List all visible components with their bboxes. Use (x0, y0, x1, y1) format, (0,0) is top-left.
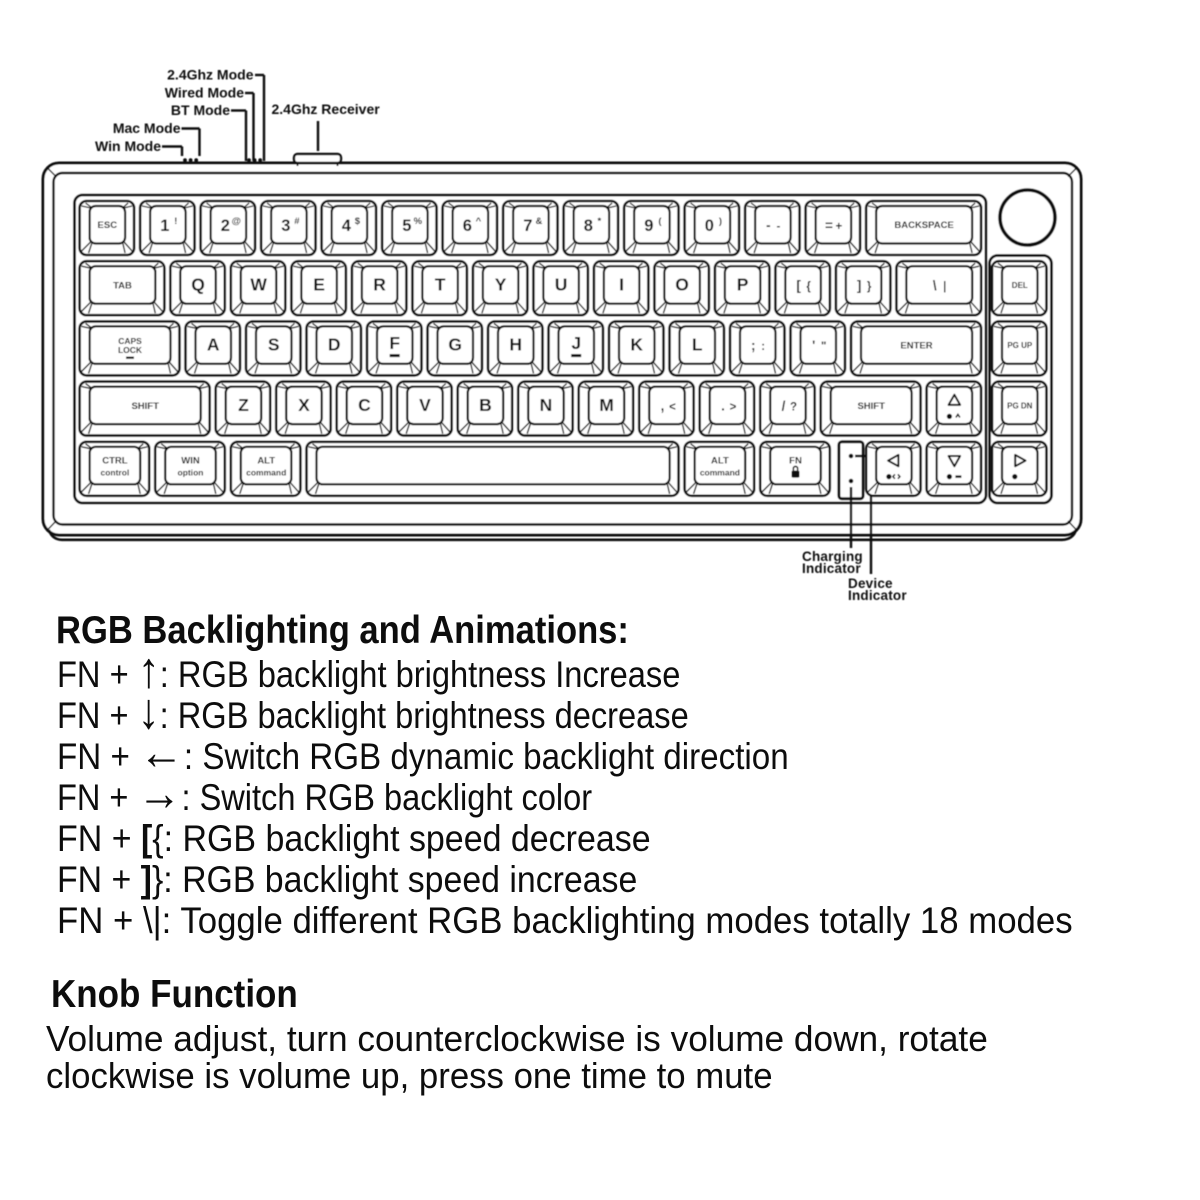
svg-text:PG UP: PG UP (1007, 341, 1033, 350)
svg-text:': ' (812, 338, 815, 353)
svg-text:Wired Mode: Wired Mode (165, 85, 244, 101)
svg-text:": " (821, 341, 826, 353)
svg-text:K: K (630, 335, 643, 355)
svg-text:>: > (730, 401, 737, 413)
svg-text:option: option (178, 468, 204, 478)
svg-text:Y: Y (495, 274, 507, 294)
svg-text:[: [ (796, 278, 801, 293)
svg-text:P: P (737, 274, 749, 294)
svg-text:\: \ (933, 278, 937, 293)
svg-text:E: E (313, 274, 325, 294)
svg-text:SHIFT: SHIFT (131, 401, 159, 412)
svg-text:2: 2 (221, 217, 230, 235)
svg-text:command: command (700, 468, 740, 478)
svg-text:/: / (782, 398, 786, 413)
svg-text:*: * (598, 216, 602, 227)
svg-text:command: command (246, 468, 286, 478)
svg-text:;: ; (751, 338, 756, 353)
svg-text:-: - (776, 221, 780, 233)
svg-text:9: 9 (644, 217, 653, 235)
svg-text:$: $ (355, 216, 361, 227)
svg-text:-: - (766, 218, 771, 233)
svg-text:H: H (509, 335, 522, 355)
svg-text:U: U (555, 274, 568, 294)
svg-text:B: B (479, 395, 492, 415)
svg-text:FN: FN (789, 456, 802, 467)
svg-text:%: % (414, 216, 423, 227)
svg-text:): ) (719, 216, 722, 227)
svg-text:5: 5 (402, 217, 411, 235)
svg-text:^: ^ (476, 216, 482, 227)
svg-text:@: @ (232, 216, 241, 227)
svg-text:L: L (692, 335, 703, 355)
svg-text:4: 4 (342, 217, 352, 235)
svg-text:Mac Mode: Mac Mode (113, 120, 181, 136)
svg-text:W: W (250, 274, 267, 294)
svg-text:BT Mode: BT Mode (171, 102, 230, 118)
svg-text:]: ] (857, 278, 862, 293)
svg-text:ALT: ALT (257, 456, 275, 467)
svg-text:V: V (419, 395, 431, 415)
svg-text:O: O (675, 274, 689, 294)
svg-text:J: J (571, 333, 581, 353)
svg-text:2.4Ghz Mode: 2.4Ghz Mode (167, 67, 254, 83)
svg-text:7: 7 (523, 217, 532, 235)
svg-text:|: | (943, 281, 946, 293)
svg-text:C: C (358, 395, 371, 415)
svg-text:3: 3 (281, 217, 290, 235)
svg-text:M: M (599, 395, 614, 415)
svg-text:.: . (721, 398, 725, 413)
svg-text:8: 8 (584, 217, 593, 235)
svg-text:R: R (373, 274, 386, 294)
svg-text:ESC: ESC (98, 220, 118, 231)
svg-text:TAB: TAB (113, 280, 132, 291)
svg-text:}: } (867, 281, 872, 293)
svg-text:D: D (328, 335, 341, 355)
svg-text:#: # (294, 216, 300, 227)
svg-text:A: A (207, 335, 220, 355)
svg-text:PG DN: PG DN (1007, 401, 1033, 410)
svg-text:Indicator: Indicator (848, 588, 907, 603)
svg-text:Win Mode: Win Mode (95, 138, 161, 154)
svg-text:+: + (836, 221, 843, 233)
svg-text:Q: Q (191, 274, 205, 294)
svg-text:T: T (435, 274, 446, 294)
svg-text:G: G (448, 335, 462, 355)
svg-text:0: 0 (705, 217, 714, 235)
svg-text:!: ! (174, 216, 177, 227)
svg-text:SHIFT: SHIFT (857, 401, 885, 412)
svg-text:S: S (268, 335, 280, 355)
svg-text:WIN: WIN (181, 456, 200, 467)
svg-text:=: = (825, 218, 833, 233)
svg-text:X: X (298, 395, 310, 415)
svg-text:1: 1 (160, 217, 169, 235)
svg-text:DEL: DEL (1012, 281, 1028, 290)
svg-text:Indicator: Indicator (802, 561, 861, 576)
svg-text:Z: Z (238, 395, 249, 415)
svg-text:CTRL: CTRL (102, 456, 128, 467)
svg-text:N: N (540, 395, 553, 415)
svg-text:LOCK: LOCK (118, 345, 143, 355)
svg-text:,: , (661, 398, 665, 413)
svg-text:F: F (389, 333, 400, 353)
svg-text:ENTER: ENTER (900, 341, 932, 352)
svg-text:<: < (669, 401, 676, 413)
svg-text:6: 6 (463, 217, 472, 235)
svg-text::: : (761, 341, 765, 353)
svg-text:?: ? (790, 401, 797, 413)
svg-text:{: { (806, 281, 811, 293)
svg-text:2.4Ghz Receiver: 2.4Ghz Receiver (272, 101, 381, 117)
svg-text:I: I (619, 274, 624, 294)
svg-text:BACKSPACE: BACKSPACE (894, 220, 953, 231)
svg-text:control: control (100, 468, 129, 478)
svg-text:ALT: ALT (711, 456, 729, 467)
svg-text:&: & (535, 216, 542, 227)
